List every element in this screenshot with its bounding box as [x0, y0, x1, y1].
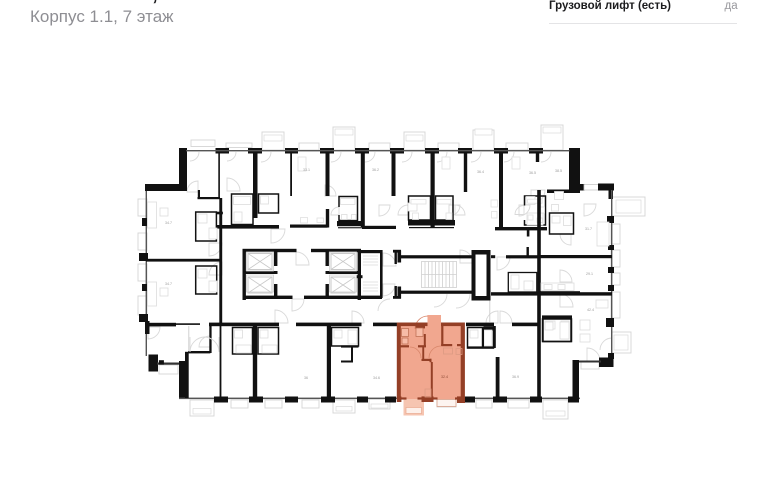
svg-text:36.2: 36.2 — [372, 168, 379, 172]
svg-text:34.6: 34.6 — [373, 376, 380, 380]
svg-text:36.9: 36.9 — [512, 375, 519, 379]
svg-text:34.7: 34.7 — [165, 221, 172, 225]
svg-text:32.4: 32.4 — [441, 375, 448, 379]
svg-text:36.5: 36.5 — [529, 171, 536, 175]
svg-text:34.7: 34.7 — [165, 282, 172, 286]
svg-text:36: 36 — [304, 376, 308, 380]
svg-text:33.1: 33.1 — [303, 168, 310, 172]
svg-text:29.1: 29.1 — [586, 272, 593, 276]
svg-text:36.4: 36.4 — [477, 170, 484, 174]
svg-text:38.5: 38.5 — [555, 169, 562, 173]
svg-text:42.4: 42.4 — [587, 308, 594, 312]
svg-text:31.7: 31.7 — [585, 227, 592, 231]
